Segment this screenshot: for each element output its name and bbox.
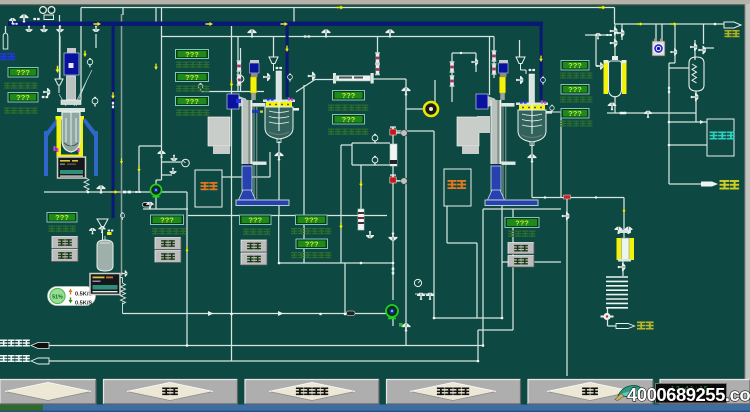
svg-text:???: ??? [160, 216, 174, 225]
svg-text:???: ??? [16, 93, 30, 102]
svg-text:???: ??? [55, 213, 69, 222]
svg-text:???: ??? [16, 68, 30, 77]
svg-text:4000689255.com: 4000689255.com [627, 384, 750, 405]
svg-text:???: ??? [185, 97, 199, 106]
svg-text:???: ??? [342, 91, 356, 100]
svg-text:???: ??? [568, 85, 582, 94]
svg-text:???: ??? [185, 50, 199, 59]
svg-text:???: ??? [305, 240, 319, 249]
svg-text:???: ??? [568, 109, 582, 118]
svg-text:???: ??? [185, 73, 199, 82]
svg-text:???: ??? [304, 216, 318, 225]
svg-text:???: ??? [248, 216, 262, 225]
svg-text:???: ??? [568, 61, 582, 70]
svg-text:???: ??? [515, 218, 529, 227]
svg-text:???: ??? [342, 115, 356, 124]
svg-text:0.5K/S: 0.5K/S [75, 301, 92, 307]
svg-text:51%: 51% [52, 294, 63, 300]
